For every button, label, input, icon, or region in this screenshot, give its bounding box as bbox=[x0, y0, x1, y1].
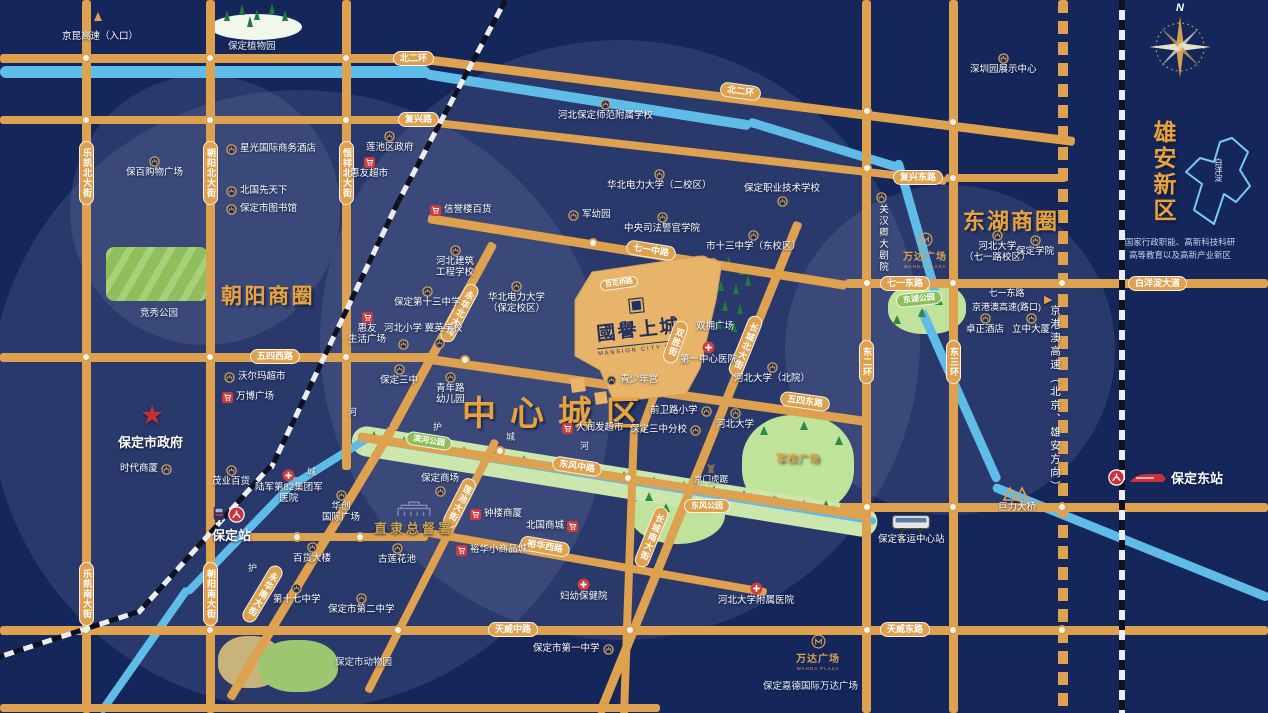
poi-xinyulou[interactable]: 信誉楼百货 bbox=[430, 205, 492, 216]
road-label-bei-er-huan[interactable]: 北二环 bbox=[393, 51, 434, 66]
xiongan-desc-line2: 高等教育以及高新产业新区 bbox=[1100, 249, 1260, 262]
road-node bbox=[81, 352, 91, 362]
poi-judicial-college[interactable]: 中央司法警官学院 bbox=[624, 212, 700, 235]
river-char: 护 bbox=[433, 420, 442, 433]
road-node bbox=[205, 115, 215, 125]
poi-mch-hospital[interactable]: 妇幼保健院 bbox=[560, 578, 608, 603]
road-node bbox=[862, 625, 872, 635]
road-node bbox=[495, 446, 505, 456]
district-xiongan: 雄安新区 bbox=[1146, 120, 1180, 224]
tree-icon bbox=[645, 492, 653, 501]
poi-baoding-college[interactable]: 保定学院 bbox=[1016, 235, 1054, 258]
pine-tree-icon bbox=[745, 275, 751, 286]
poi-qianwei-primary[interactable]: 前卫路小学 bbox=[650, 406, 712, 417]
poi-beiguo-mall[interactable]: 北国商城 bbox=[526, 521, 578, 532]
road-wusi-west bbox=[0, 353, 434, 362]
xiongan-description: 国家行政职能、高新科技科研 高等教育以及高新产业新区 bbox=[1100, 236, 1260, 262]
poi-shuangyong-square[interactable]: 双拥广场 bbox=[696, 322, 734, 333]
road-label-chaoyang-north[interactable]: 朝阳北大街 bbox=[203, 141, 218, 205]
baiyangdian-lake-outline bbox=[1180, 132, 1258, 240]
school-icon bbox=[398, 339, 409, 350]
road-node bbox=[355, 532, 365, 542]
road-node bbox=[1057, 278, 1067, 288]
poi-department-store[interactable]: 百货大楼 bbox=[293, 542, 331, 565]
road-node bbox=[862, 278, 872, 288]
road-node bbox=[460, 355, 470, 365]
poi-army-hospital[interactable]: 陆军第82集团军医院 bbox=[255, 469, 323, 505]
poi-xingguang-hotel[interactable]: 星光国际商务酒店 bbox=[226, 144, 316, 155]
china-railway-icon bbox=[228, 506, 245, 523]
district-chaoyang: 朝阳商圈 bbox=[221, 280, 315, 310]
poi-baobai-plaza[interactable]: 保百购物广场 bbox=[126, 156, 183, 179]
poi-first-central-hospital[interactable]: 第一中心医院 bbox=[680, 341, 737, 366]
zoo-area-east bbox=[258, 640, 338, 692]
road-node bbox=[205, 625, 215, 635]
road-label-lekai-south[interactable]: 乐凯南大街 bbox=[79, 562, 94, 626]
pine-tree-icon bbox=[269, 3, 275, 14]
highspeed-railway-line bbox=[1119, 0, 1125, 713]
poi-hebei-primary[interactable]: 河北小学 冀英学校 bbox=[384, 324, 463, 335]
road-node bbox=[948, 173, 958, 183]
poi-governor-office[interactable]: 直隶总督署 bbox=[374, 500, 454, 537]
poi-youth-kindergarten[interactable]: 青年路幼儿园 bbox=[436, 372, 465, 406]
road-node bbox=[341, 115, 351, 125]
pine-tree-icon bbox=[239, 4, 245, 15]
poi-lotus-pond[interactable]: 古莲花池 bbox=[378, 543, 416, 566]
poi-no3-school[interactable]: 保定三中 bbox=[380, 364, 418, 387]
road-node bbox=[948, 502, 958, 512]
pine-tree-icon bbox=[247, 16, 253, 27]
road-node bbox=[862, 106, 872, 116]
poi-no13-school[interactable]: 保定第十三中学 bbox=[394, 286, 461, 309]
poi-hb-construction-school[interactable]: 河北建筑工程学校 bbox=[436, 245, 474, 279]
road-label-qiyi-east[interactable]: 七一东路 bbox=[880, 276, 930, 291]
poi-lizhong-tower[interactable]: 立中大厦 bbox=[1012, 313, 1050, 336]
road-node bbox=[862, 502, 872, 512]
poi-shenzhen-center[interactable]: 深圳园展示中心 bbox=[970, 53, 1037, 76]
park-label-jingxiu: 竞秀公园 bbox=[140, 305, 178, 319]
poi-jingmen-huju[interactable]: 京门虎踞 bbox=[694, 460, 728, 485]
park-label-dongfeng[interactable]: 东风公园 bbox=[684, 499, 730, 513]
baiyangdian-label: 白洋淀 bbox=[1213, 158, 1224, 182]
road-node bbox=[948, 625, 958, 635]
park-label-botanical: 保定植物园 bbox=[228, 38, 276, 52]
road-node bbox=[1057, 502, 1067, 512]
poi-no13-east-campus[interactable]: 市十三中学（东校区） bbox=[706, 230, 801, 253]
poi-rtmart[interactable]: 大润发超市 bbox=[562, 423, 624, 434]
poi-no17-school[interactable]: 第十七中学 bbox=[273, 583, 321, 606]
compass-north-label: N bbox=[1145, 2, 1215, 14]
poi-lianchi-government[interactable]: 莲池区政府 bbox=[366, 131, 414, 154]
road-label-lekai-north[interactable]: 乐凯北大街 bbox=[79, 141, 94, 205]
baoding-location-map: 國譽上城 MANSION CITY ONE 百花桥路 北二环 北二环 复兴路 复… bbox=[0, 0, 1268, 713]
road-node bbox=[341, 53, 351, 63]
road-label-tianwei-middle[interactable]: 天威中路 bbox=[488, 622, 538, 637]
compass: N bbox=[1145, 2, 1215, 85]
pine-tree-icon bbox=[224, 10, 230, 21]
road-node bbox=[205, 352, 215, 362]
china-railway-icon bbox=[1108, 469, 1125, 486]
poi-walmart[interactable]: 沃尔玛超市 bbox=[224, 372, 286, 383]
highspeed-train-icon bbox=[1128, 472, 1168, 484]
tree-icon bbox=[835, 436, 843, 445]
road-node bbox=[341, 352, 351, 362]
pine-tree-icon bbox=[282, 10, 288, 21]
poi-huiyou-life-plaza[interactable]: 惠友生活广场 bbox=[348, 312, 386, 346]
poi-vocational-school[interactable]: 保定职业技术学校 bbox=[744, 184, 820, 207]
road-node bbox=[948, 117, 958, 127]
project-emblem-icon bbox=[628, 297, 644, 313]
poi-hbu-north[interactable]: 河北大学（北院） bbox=[734, 362, 810, 385]
road-fuxing bbox=[0, 116, 432, 124]
poi-wanda-plaza-north[interactable]: 万达广场WANDA PLAZA bbox=[903, 232, 947, 269]
road-label-chaoyang-south[interactable]: 朝阳南大街 bbox=[203, 562, 218, 626]
road-node bbox=[81, 53, 91, 63]
poi-ncepu-baoding[interactable]: 华北电力大学（保定校区） bbox=[488, 281, 545, 315]
river-north bbox=[0, 66, 430, 78]
poi-wanbo-plaza[interactable]: 万博广场 bbox=[222, 392, 274, 403]
road-label-fuxing[interactable]: 复兴路 bbox=[398, 112, 439, 127]
poi-library[interactable]: 保定市图书馆 bbox=[226, 204, 297, 215]
compass-rose-icon bbox=[1147, 14, 1213, 80]
poi-hbu[interactable]: 河北大学 bbox=[716, 408, 754, 431]
road-label-fuxing-east[interactable]: 复兴东路 bbox=[893, 170, 943, 185]
poi-maoye[interactable]: 茂业百货 bbox=[212, 465, 250, 488]
poi-ncepu-campus2[interactable]: 华北电力大学（二校区） bbox=[607, 169, 712, 192]
poi-huachuang-plaza[interactable]: 华创国际广场 bbox=[322, 490, 360, 524]
expressway-junction-note: 七一东路京港澳高速(路口) ▶ bbox=[972, 287, 1052, 314]
school-icon bbox=[434, 338, 445, 349]
road-hengxiang-street bbox=[342, 0, 351, 470]
poi-no2-school[interactable]: 保定市第二中学 bbox=[328, 593, 395, 616]
poi-yuhua-mall[interactable]: 裕华小商品城 bbox=[456, 545, 527, 556]
road-node bbox=[205, 53, 215, 63]
road-label-baiyangdian-ave[interactable]: 白洋淀大道 bbox=[1128, 276, 1187, 291]
poi-huiyou-market[interactable]: 惠友超市 bbox=[350, 157, 388, 180]
poi-baoding-mall[interactable]: 保定商场 bbox=[421, 474, 459, 497]
poi-wanda-plaza-south[interactable]: 万达广场WANDA PLAZA bbox=[796, 634, 840, 671]
road-dongfeng-east bbox=[840, 503, 1268, 512]
poi-zhuozheng-hotel[interactable]: 卓正酒店 bbox=[966, 313, 1004, 336]
road-label-dong-er-huan[interactable]: 东二环 bbox=[859, 340, 874, 384]
road-node bbox=[625, 625, 635, 635]
road-bei-er-huan-west bbox=[0, 54, 430, 63]
park-label-zoo: 保定市动物园 bbox=[335, 654, 392, 668]
poi-baoding-east-station[interactable]: 保定东站 bbox=[1108, 468, 1223, 487]
poi-city-government[interactable]: 保定市政府 bbox=[118, 432, 183, 451]
poi-bus-center[interactable]: 保定客运中心站 bbox=[878, 514, 945, 546]
governor-office-building-icon bbox=[396, 500, 432, 517]
road-node bbox=[948, 278, 958, 288]
tree-icon bbox=[760, 426, 768, 435]
poi-hbu-hospital[interactable]: 河北大学附属医院 bbox=[718, 582, 794, 607]
poi-times-mall[interactable]: 时代商厦 bbox=[120, 464, 172, 475]
river-char: 城 bbox=[506, 430, 515, 443]
poi-wanda-jiade-label: 保定嘉德国际万达广场 bbox=[763, 678, 858, 692]
highway-entry-icon bbox=[94, 12, 102, 21]
poi-beiguo-xiantianxia[interactable]: 北国先天下 bbox=[226, 186, 288, 197]
road-label-wusi-west[interactable]: 五四西路 bbox=[250, 349, 300, 364]
poi-jun-kindergarten[interactable]: 军幼园 bbox=[568, 210, 611, 221]
jingxiu-park-area bbox=[106, 247, 208, 301]
arrow-right-icon: ▶ bbox=[1044, 292, 1052, 309]
park-label-junxiao: 军校广场 bbox=[776, 450, 820, 465]
poi-no1-school[interactable]: 保定市第一中学 bbox=[533, 644, 614, 655]
river-char: 护 bbox=[248, 561, 257, 574]
tree-icon bbox=[893, 315, 901, 324]
poi-normal-school[interactable]: 河北保定师范附属学校 bbox=[558, 99, 653, 122]
road-node bbox=[81, 115, 91, 125]
wanda-logo-icon bbox=[811, 634, 826, 649]
train-icon bbox=[212, 505, 226, 523]
river-char: 河 bbox=[348, 405, 357, 418]
road-node bbox=[1057, 625, 1067, 635]
tree-icon bbox=[800, 421, 808, 430]
road-node bbox=[393, 625, 403, 635]
district-central: 中心城区 bbox=[462, 386, 654, 435]
road-south-edge bbox=[0, 704, 660, 712]
poi-zhonglou-mall[interactable]: 钟楼商厦 bbox=[470, 509, 522, 520]
poi-guanhanqing-theatre[interactable]: 关汉卿大剧院 bbox=[876, 192, 887, 273]
road-node bbox=[623, 473, 633, 483]
road-node bbox=[292, 532, 302, 542]
xiongan-desc-line1: 国家行政职能、高新科技科研 bbox=[1100, 236, 1260, 249]
jingkun-entry-label: 京昆高速（入口） bbox=[62, 28, 138, 42]
river-char: 河 bbox=[580, 439, 589, 452]
road-label-dong-san-huan[interactable]: 东三环 bbox=[946, 340, 961, 384]
wanda-logo-icon bbox=[918, 232, 933, 247]
poi-no3-branch[interactable]: 保定三中分校 bbox=[630, 425, 701, 436]
poi-baoding-station[interactable]: 保定站 bbox=[212, 505, 251, 544]
road-fuxing-east bbox=[945, 174, 1067, 182]
city-gov-star-icon: ★ bbox=[140, 402, 164, 429]
road-node bbox=[862, 163, 872, 173]
poi-juli-bridge[interactable]: 巨力大桥 bbox=[998, 486, 1036, 514]
pine-tree-icon bbox=[254, 9, 260, 20]
tree-icon bbox=[918, 308, 926, 317]
road-label-tianwei-east[interactable]: 天威东路 bbox=[880, 622, 930, 637]
road-label-jinggangao: 京港澳高速（北京、雄安方向） bbox=[1048, 305, 1063, 494]
poi-youth-palace[interactable]: 青少年宫 bbox=[606, 375, 658, 386]
